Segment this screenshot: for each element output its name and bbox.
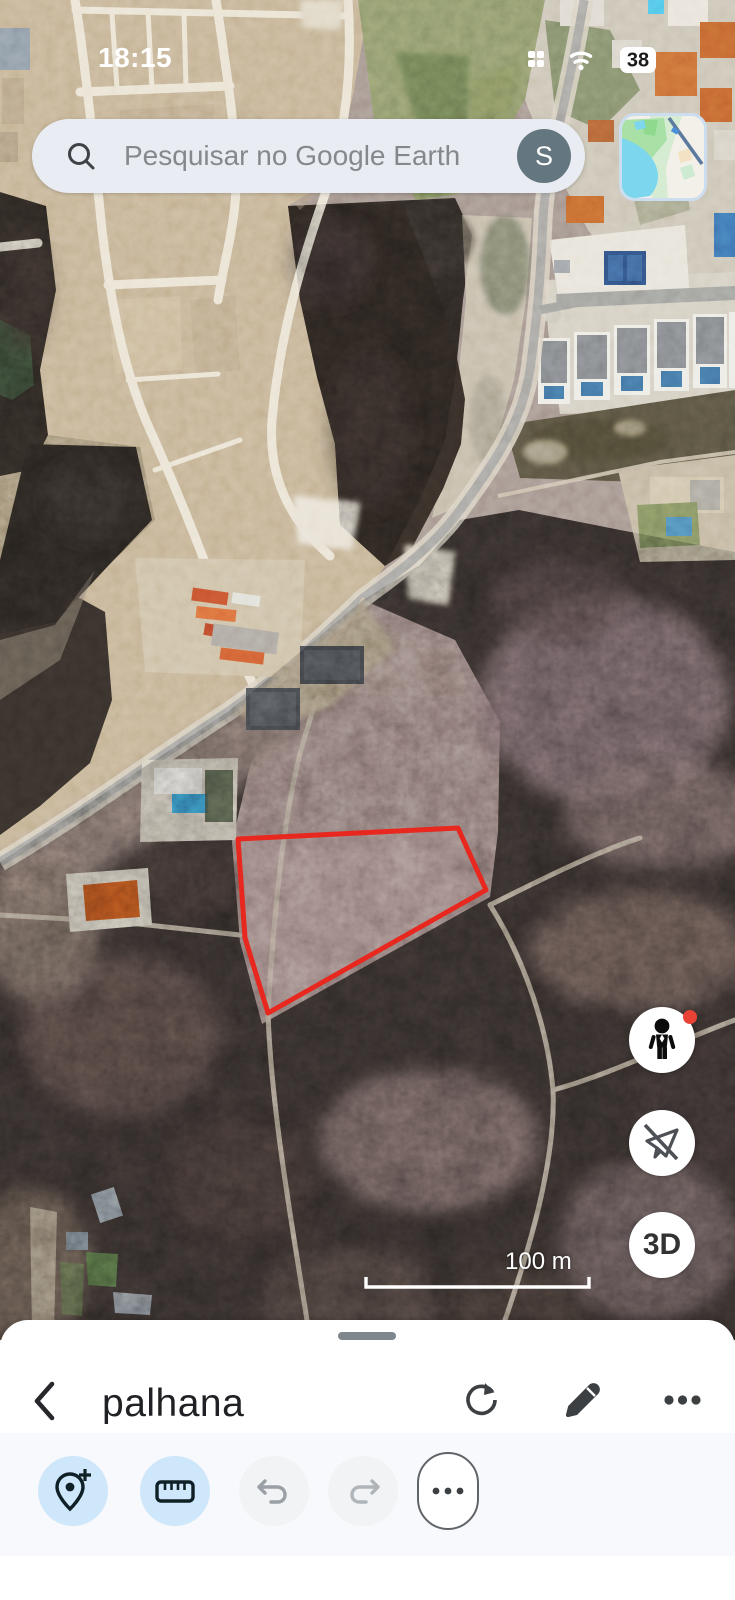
svg-text:38: 38	[627, 50, 649, 72]
